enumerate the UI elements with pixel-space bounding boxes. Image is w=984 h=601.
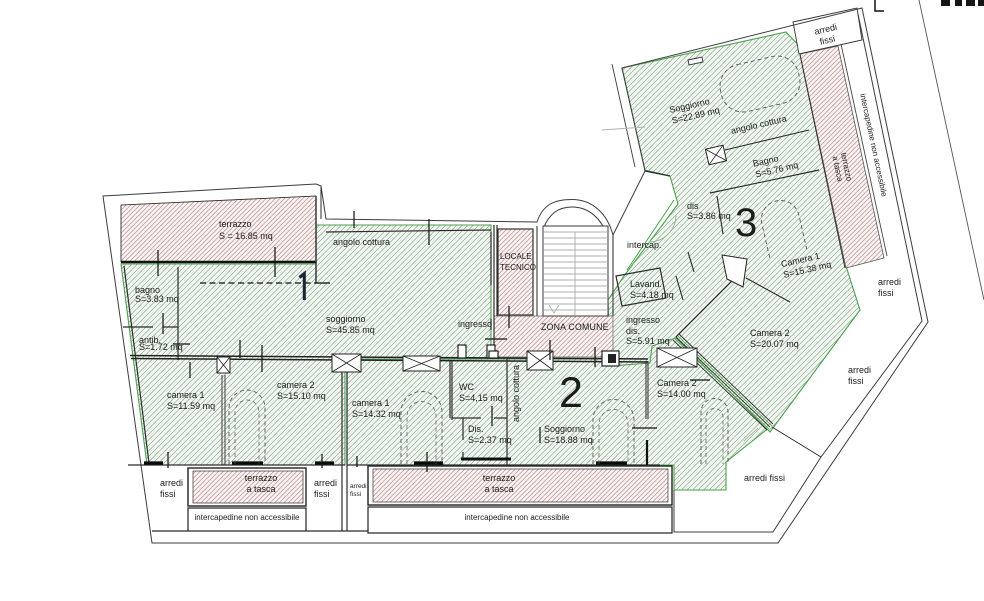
svg-text:dis: dis <box>687 201 699 211</box>
svg-text:terrazzo: terrazzo <box>245 473 278 483</box>
svg-text:a tasca: a tasca <box>484 484 513 494</box>
svg-text:fissi: fissi <box>878 288 894 298</box>
svg-text:LOCALE: LOCALE <box>500 252 532 261</box>
svg-text:arredi: arredi <box>350 483 367 490</box>
svg-text:ZONA COMUNE: ZONA COMUNE <box>541 322 609 332</box>
svg-text:ingresso: ingresso <box>458 319 492 329</box>
svg-text:intercap.: intercap. <box>627 240 662 250</box>
svg-text:fissi: fissi <box>314 489 330 499</box>
svg-text:Lavand.: Lavand. <box>630 279 662 289</box>
svg-text:S=14.00 mq: S=14.00 mq <box>657 389 706 399</box>
svg-text:S=4.18 mq: S=4.18 mq <box>630 290 674 300</box>
svg-text:fissi: fissi <box>160 489 176 499</box>
svg-text:dis.: dis. <box>626 326 640 336</box>
svg-text:S=2.37 mq: S=2.37 mq <box>468 435 512 445</box>
svg-text:arredi: arredi <box>878 277 901 287</box>
svg-text:TECNICO: TECNICO <box>500 263 536 272</box>
svg-text:arredi: arredi <box>160 478 183 488</box>
svg-text:terrazzo: terrazzo <box>219 219 252 229</box>
svg-text:S=11.59 mq: S=11.59 mq <box>167 401 215 411</box>
svg-text:S=15.10 mq: S=15.10 mq <box>277 391 326 401</box>
svg-text:Camera 2: Camera 2 <box>657 378 697 388</box>
svg-text:2: 2 <box>559 369 583 417</box>
svg-text:S=4,15 mq: S=4,15 mq <box>459 393 503 403</box>
svg-text:camera 1: camera 1 <box>167 390 205 400</box>
svg-text:S=5.91 mq: S=5.91 mq <box>626 336 670 346</box>
svg-text:soggiorno: soggiorno <box>326 314 366 324</box>
svg-text:S=14.32 mq: S=14.32 mq <box>352 409 401 419</box>
svg-text:ingresso: ingresso <box>626 315 660 325</box>
svg-text:S=3.83 mq: S=3.83 mq <box>135 294 179 304</box>
svg-text:Camera 2: Camera 2 <box>750 328 790 338</box>
svg-text:S=1.72 mq: S=1.72 mq <box>139 342 183 352</box>
svg-text:S=20.07 mq: S=20.07 mq <box>750 339 799 349</box>
svg-text:intercapedine non accessibile: intercapedine non accessibile <box>465 513 571 522</box>
svg-text:fissi: fissi <box>848 376 864 386</box>
svg-text:intercapedine non accessibile: intercapedine non accessibile <box>195 513 301 522</box>
svg-text:S=45.85 mq: S=45.85 mq <box>326 325 375 335</box>
svg-text:S=18.88 mq: S=18.88 mq <box>544 435 593 445</box>
svg-text:angolo cottura: angolo cottura <box>511 365 521 422</box>
svg-text:3: 3 <box>735 201 757 245</box>
svg-text:fissi: fissi <box>350 491 361 498</box>
svg-text:terrazzo: terrazzo <box>483 473 516 483</box>
svg-text:arredi: arredi <box>848 365 871 375</box>
svg-text:arredi fissi: arredi fissi <box>744 473 785 483</box>
svg-text:WC: WC <box>459 382 474 392</box>
svg-text:Dis.: Dis. <box>468 424 484 434</box>
svg-text:angolo cottura: angolo cottura <box>333 237 390 247</box>
svg-text:arredi: arredi <box>314 478 337 488</box>
svg-text:camera 2: camera 2 <box>277 380 315 390</box>
svg-text:Soggiorno: Soggiorno <box>544 424 585 434</box>
svg-text:S=3.86 mq: S=3.86 mq <box>687 211 731 221</box>
svg-text:S = 16.85 mq: S = 16.85 mq <box>219 231 273 241</box>
svg-text:camera 1: camera 1 <box>352 398 390 408</box>
svg-text:a tasca: a tasca <box>246 484 275 494</box>
